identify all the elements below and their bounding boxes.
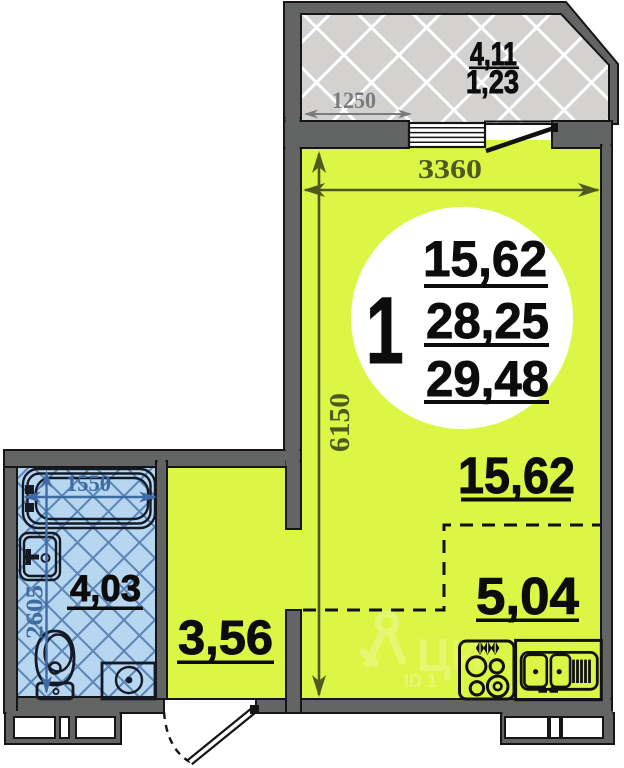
- svg-text:15,62: 15,62: [423, 231, 547, 287]
- svg-text:5,04: 5,04: [476, 568, 579, 626]
- svg-text:3360: 3360: [418, 154, 482, 184]
- svg-text:1: 1: [366, 277, 404, 384]
- svg-text:1250: 1250: [332, 88, 376, 113]
- svg-text:1,23: 1,23: [466, 64, 519, 100]
- svg-text:15,62: 15,62: [458, 447, 575, 504]
- svg-text:4,03: 4,03: [70, 568, 141, 609]
- svg-text:28,25: 28,25: [426, 293, 549, 349]
- svg-text:3,56: 3,56: [178, 612, 273, 665]
- svg-text:2605: 2605: [23, 585, 49, 639]
- svg-text:И: И: [450, 629, 483, 681]
- svg-text:29,48: 29,48: [426, 351, 549, 407]
- svg-text:6150: 6150: [324, 393, 356, 452]
- svg-text:ID 1: ID 1: [404, 671, 437, 691]
- svg-text:1550: 1550: [66, 471, 111, 496]
